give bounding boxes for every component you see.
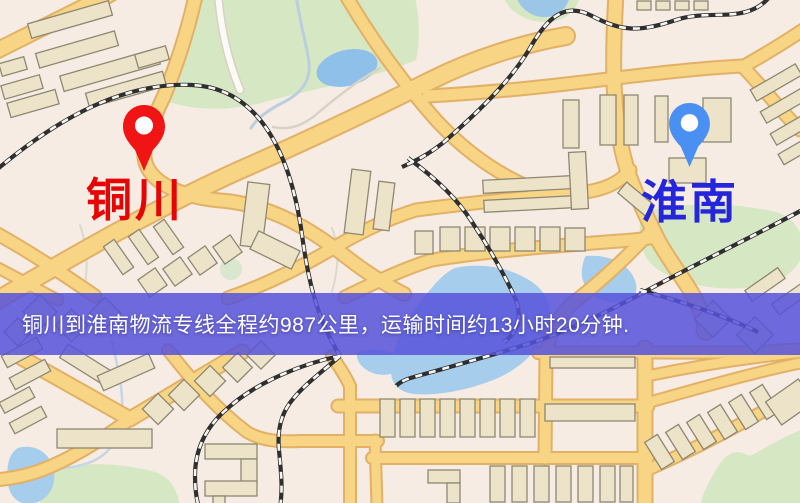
destination-pin-shape xyxy=(669,103,710,167)
origin-city-label: 铜川 xyxy=(86,177,184,223)
destination-city-label: 淮南 xyxy=(641,179,739,225)
route-info-text: 铜川到淮南物流专线全程约987公里，运输时间约13小时20分钟. xyxy=(22,309,630,339)
origin-map-pin-icon xyxy=(120,103,168,173)
origin-pin-shape xyxy=(123,105,165,171)
destination-map-pin-icon xyxy=(666,101,713,169)
route-info-banner: 铜川到淮南物流专线全程约987公里，运输时间约13小时20分钟. xyxy=(0,293,800,355)
logistics-route-map: 铜川 淮南 铜川到淮南物流专线全程约987公里，运输时间约13小时20分钟. xyxy=(0,0,800,503)
map-canvas xyxy=(0,0,800,503)
